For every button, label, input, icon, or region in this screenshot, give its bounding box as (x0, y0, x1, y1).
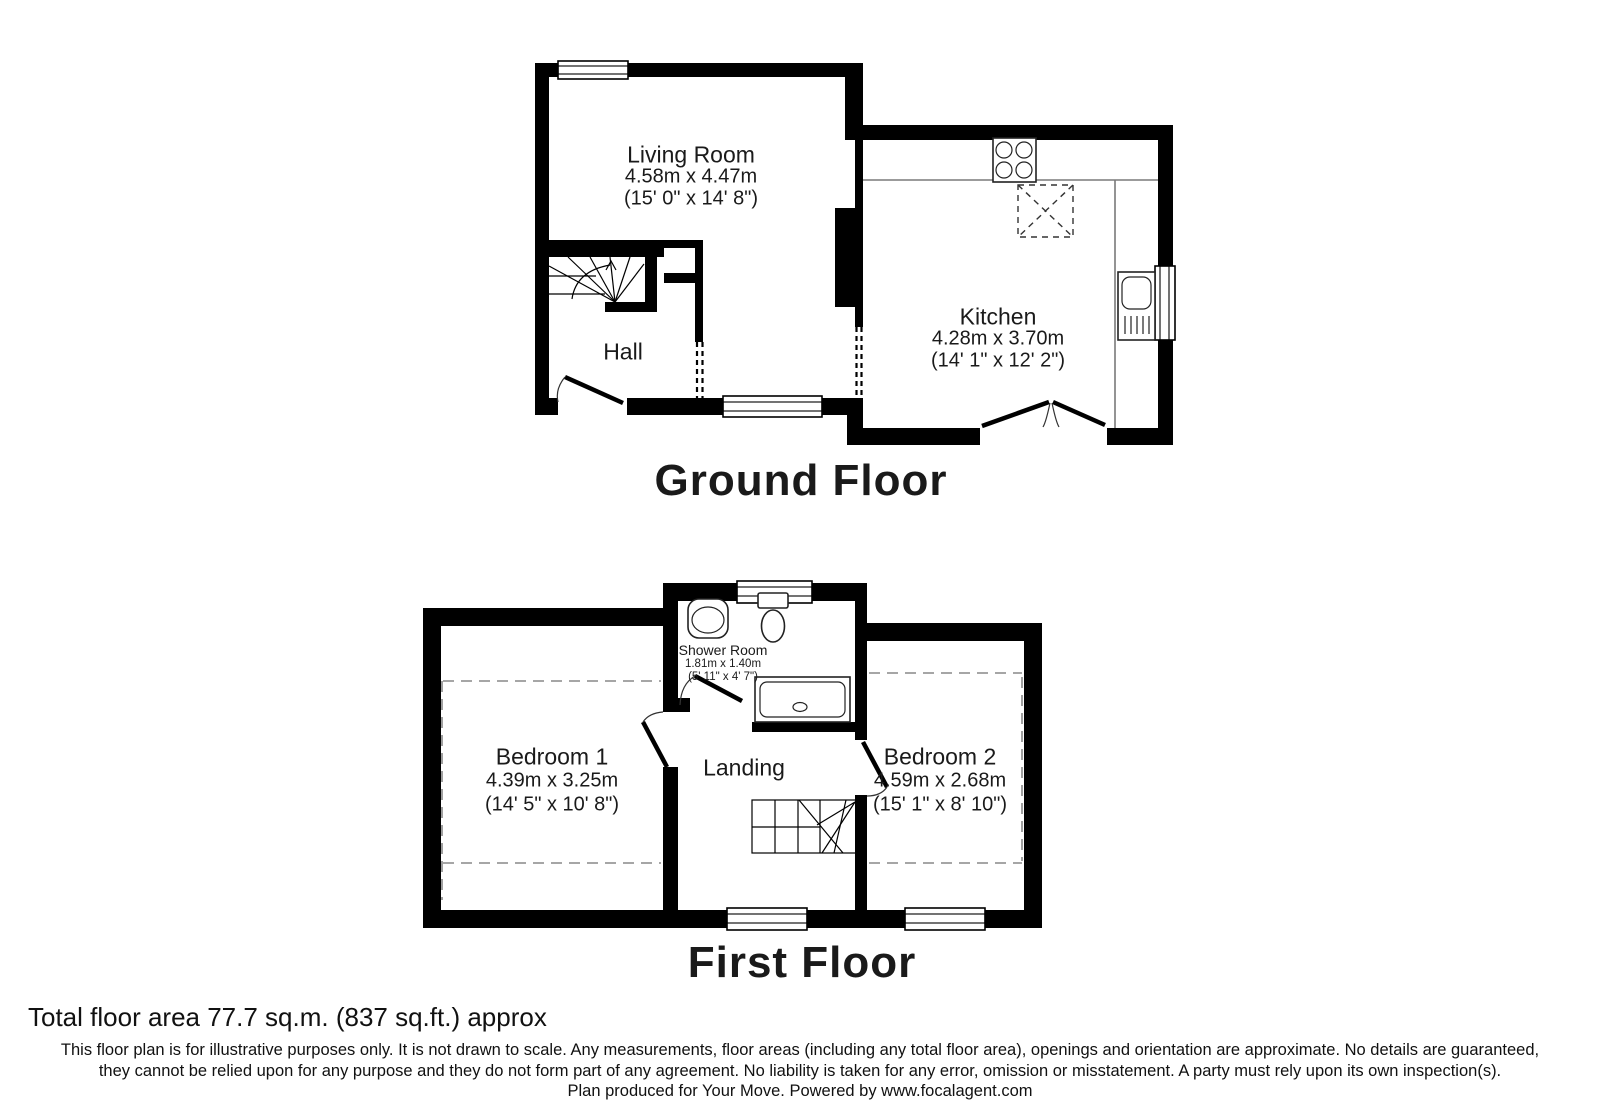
window-symbol (727, 908, 807, 930)
shower-room-metric: 1.81m x 1.40m (685, 658, 761, 670)
staircase (549, 257, 644, 302)
toilet-icon (758, 593, 788, 642)
living-room-metric: 4.58m x 4.47m (625, 166, 757, 189)
shower-tray-icon (755, 677, 850, 722)
disclaimer-line-2: they cannot be relied upon for any purpo… (0, 1061, 1600, 1082)
kitchen-label: Kitchen (960, 304, 1037, 331)
window-symbol (558, 61, 628, 79)
credit-line: Plan produced for Your Move. Powered by … (0, 1081, 1600, 1102)
window-symbol (905, 908, 985, 930)
ground-floor-title: Ground Floor (654, 456, 947, 506)
first-floor-title: First Floor (688, 938, 917, 988)
window-symbol (723, 396, 822, 417)
staircase (752, 800, 857, 853)
bedroom1-label: Bedroom 1 (496, 744, 609, 771)
kitchen-metric: 4.28m x 3.70m (932, 328, 1064, 351)
floor-plan-ground (510, 50, 1190, 460)
door-swing-front (557, 377, 623, 403)
basin-icon (688, 599, 728, 638)
door-swing-bedroom1 (643, 712, 667, 767)
window-symbol (1155, 266, 1175, 340)
disclaimer: This floor plan is for illustrative purp… (0, 1040, 1600, 1102)
extractor-icon (1018, 185, 1073, 237)
kitchen-imperial: (14' 1" x 12' 2") (931, 350, 1065, 373)
bedroom2-metric: 4.59m x 2.68m (874, 770, 1006, 793)
wall-opening-living-kitchen (857, 327, 862, 398)
landing-label: Landing (703, 755, 785, 782)
floorplan-page: Living Room 4.58m x 4.47m (15' 0" x 14' … (0, 0, 1600, 1120)
hall-label: Hall (603, 339, 643, 366)
disclaimer-line-1: This floor plan is for illustrative purp… (0, 1040, 1600, 1061)
shower-room-imperial: (5' 11" x 4' 7") (688, 671, 758, 683)
total-floor-area: Total floor area 77.7 sq.m. (837 sq.ft.)… (28, 1002, 547, 1033)
ground-walls (535, 63, 1173, 445)
wall-opening-hall-living (697, 342, 703, 398)
bedroom2-imperial: (15' 1" x 8' 10") (873, 794, 1007, 817)
bedroom1-metric: 4.39m x 3.25m (486, 770, 618, 793)
shower-room-label: Shower Room (679, 642, 768, 658)
bedroom2-label: Bedroom 2 (884, 744, 997, 771)
door-swing-kitchen (982, 402, 1105, 427)
living-room-imperial: (15' 0" x 14' 8") (624, 188, 758, 211)
living-room-label: Living Room (627, 142, 755, 169)
bedroom1-imperial: (14' 5" x 10' 8") (485, 794, 619, 817)
sink-icon (1118, 272, 1155, 340)
hob-icon (993, 138, 1036, 182)
